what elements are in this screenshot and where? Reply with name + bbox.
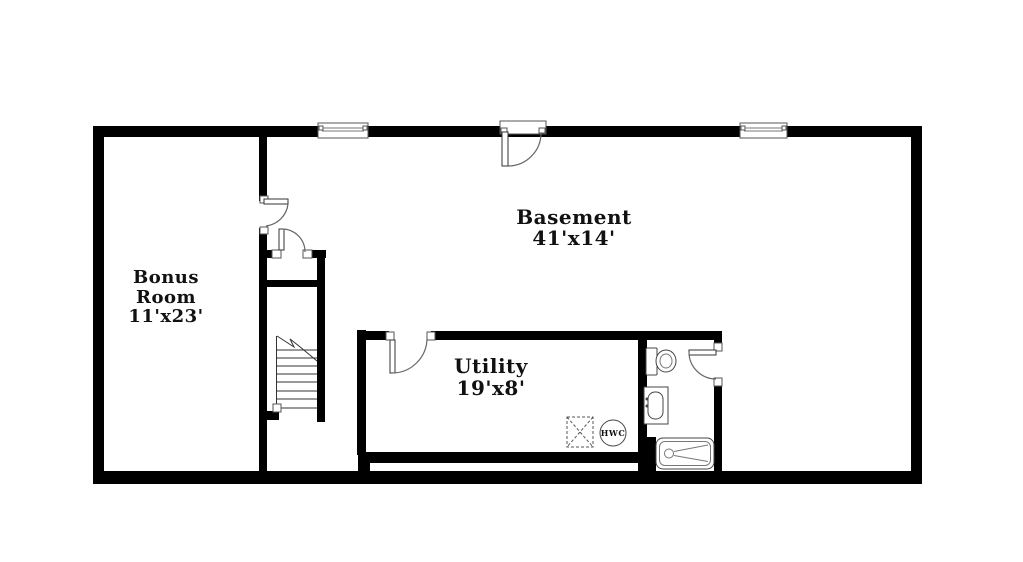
- wall-utility-bath-top: [431, 331, 714, 340]
- sink-vanity-icon: [644, 387, 668, 424]
- wall-foundation-step: [358, 452, 370, 475]
- utility-dimensions: 19'x8': [457, 376, 526, 400]
- wall-closet-back: [263, 280, 325, 287]
- wall-right: [911, 126, 922, 484]
- floor-plan-drawing: HWC Basement 41'x14' Bonus Room 11'x23' …: [0, 0, 1023, 562]
- bonus-room-door-swing-icon: [260, 196, 288, 234]
- closet-door-swing-icon: [272, 229, 312, 258]
- stair-break-line: [277, 336, 317, 361]
- bonus-room-label-line1: Bonus: [133, 267, 199, 288]
- wall-bottom: [93, 471, 922, 484]
- window-icon-right: [740, 123, 787, 138]
- utility-label: Utility: [454, 354, 529, 378]
- wall-tub-left: [647, 437, 656, 471]
- wall-stairwell-right: [317, 250, 325, 422]
- stair-newel-post: [273, 404, 281, 412]
- entry-door-swing-icon: [500, 121, 546, 166]
- bathroom-door-swing-icon: [689, 343, 722, 386]
- wall-left: [93, 126, 104, 484]
- basement-dimensions: 41'x14': [532, 226, 615, 250]
- wall-bath-right-lower: [714, 381, 722, 471]
- bonus-room-label-line2: Room: [136, 287, 196, 308]
- stairs-icon: [273, 336, 317, 412]
- floor-plan-page: HWC Basement 41'x14' Bonus Room 11'x23' …: [0, 0, 1023, 562]
- wall-utility-bottom: [358, 452, 648, 463]
- wall-utility-left: [357, 330, 366, 455]
- hot-water-cylinder-icon: HWC: [600, 420, 626, 446]
- toilet-icon: [646, 348, 676, 375]
- exterior-walls: [93, 126, 922, 484]
- utility-door-swing-icon: [386, 332, 435, 373]
- hot-water-cylinder-label: HWC: [601, 428, 625, 438]
- wall-utility-top-stub: [357, 331, 389, 340]
- room-labels: Basement 41'x14' Bonus Room 11'x23' Util…: [128, 205, 632, 400]
- window-icon-left: [318, 123, 368, 138]
- wall-bonus-right-upper: [259, 137, 267, 201]
- wall-bonus-right-lower: [259, 228, 267, 471]
- bonus-room-dimensions: 11'x23': [128, 306, 203, 327]
- appliance-space-icon: [567, 417, 593, 447]
- bathtub-icon: [656, 438, 714, 469]
